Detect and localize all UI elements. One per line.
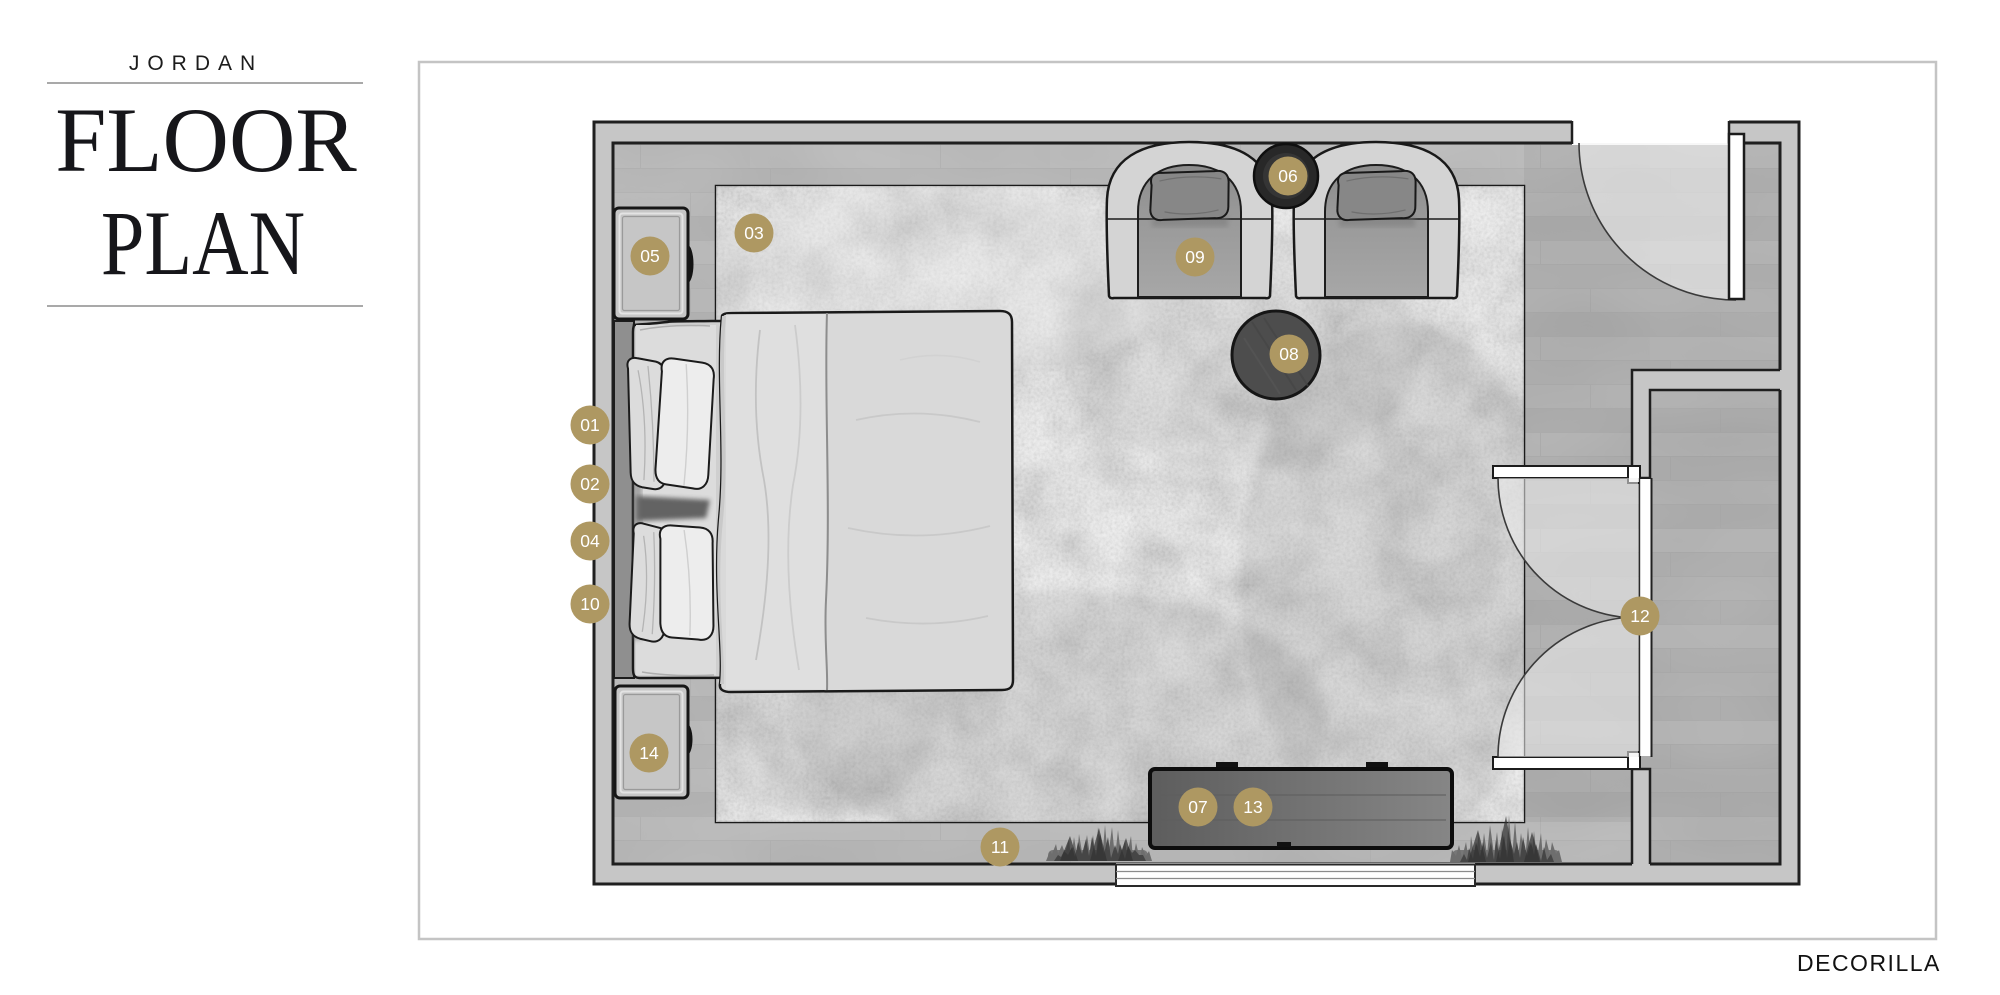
svg-text:13: 13 <box>1243 797 1262 817</box>
svg-text:06: 06 <box>1278 166 1297 186</box>
svg-text:05: 05 <box>640 246 659 266</box>
svg-text:11: 11 <box>991 837 1009 857</box>
svg-text:01: 01 <box>580 415 599 435</box>
svg-text:07: 07 <box>1188 797 1207 817</box>
svg-text:09: 09 <box>1185 247 1204 267</box>
svg-text:03: 03 <box>744 223 763 243</box>
svg-text:08: 08 <box>1279 344 1298 364</box>
svg-text:04: 04 <box>580 531 600 551</box>
svg-text:02: 02 <box>580 474 599 494</box>
svg-text:14: 14 <box>639 743 659 763</box>
svg-text:10: 10 <box>580 594 600 614</box>
svg-text:12: 12 <box>1630 606 1649 626</box>
